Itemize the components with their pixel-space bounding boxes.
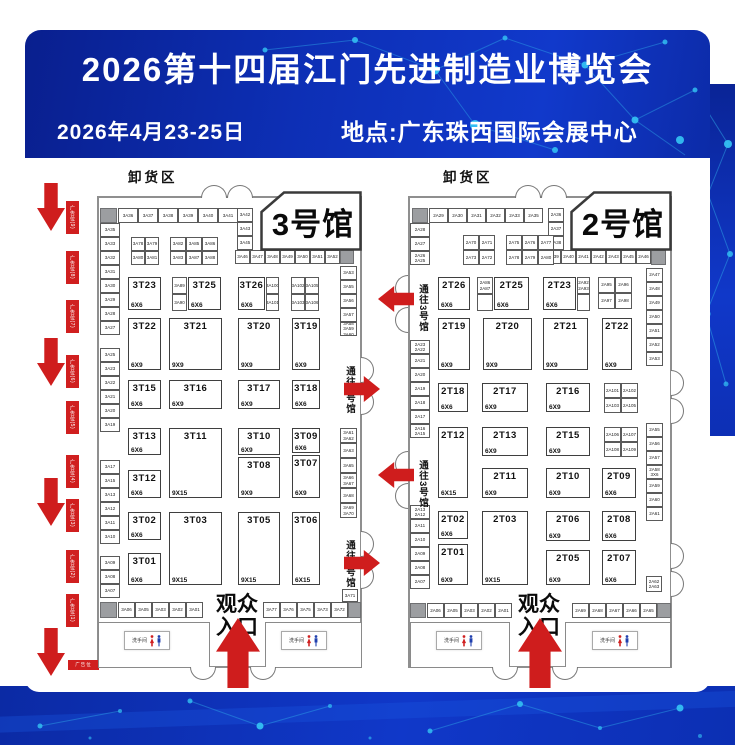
booth-id: 3T03 bbox=[170, 515, 221, 526]
booth-id: 2T26 bbox=[439, 280, 469, 291]
booth-id: 2A107 bbox=[623, 432, 636, 437]
booth-3A68: 3A68 bbox=[340, 488, 357, 503]
booth-3A35: 3A35 bbox=[100, 223, 120, 237]
booth-id: 3A65 bbox=[343, 463, 354, 468]
booth-2A41: 2A41 bbox=[576, 250, 591, 264]
booth-3A17: 3A17 bbox=[100, 460, 120, 474]
booth-id: 3A21 bbox=[105, 394, 116, 399]
booth-2A56: 2A56 bbox=[646, 437, 663, 451]
booth-id: 3A56 bbox=[343, 298, 354, 303]
booth-id: 3A47 bbox=[252, 254, 263, 259]
booth-size: 6X9 bbox=[485, 448, 497, 455]
booth-3A72: 3A72 bbox=[331, 602, 348, 618]
booth-3A100: 3A100 bbox=[266, 277, 279, 294]
booth-id: 2A53 bbox=[649, 356, 660, 361]
booth-id: 3T08 bbox=[239, 460, 279, 471]
booth-id: 2A109 bbox=[623, 447, 636, 452]
booth-size: 6X9 bbox=[485, 404, 497, 411]
booth-id: 3T09 bbox=[293, 431, 319, 442]
booth-3A15: 3A15 bbox=[100, 474, 120, 488]
booth-id: 3A60 bbox=[343, 332, 354, 336]
booth-size: 6X6 bbox=[441, 531, 453, 538]
booth-2A19: 2A19 bbox=[410, 382, 430, 396]
booth-id: 3A11 bbox=[105, 520, 115, 525]
booth-id: 2A60 bbox=[649, 497, 660, 502]
booth-size: 6X9 bbox=[241, 447, 253, 454]
booth-id: 3A02 bbox=[172, 607, 183, 612]
booth-2A31: 2A31 bbox=[467, 208, 486, 223]
booth-id: 2A05 bbox=[447, 608, 458, 613]
booth-3A19: 3A19 bbox=[100, 418, 120, 432]
booth-id: 2A103 bbox=[606, 403, 619, 408]
booth-2A20: 2A20 bbox=[410, 368, 430, 382]
booth-id: 3A33 bbox=[105, 241, 116, 246]
booth-id: 2T13 bbox=[483, 430, 527, 441]
booth-3A42: 3A42 bbox=[237, 208, 253, 222]
male-icon bbox=[156, 635, 162, 647]
booth-2T12: 2T126X15 bbox=[438, 427, 468, 498]
booth-id: 2A70 bbox=[466, 240, 477, 245]
booth-2A97: 2A97 bbox=[598, 293, 615, 309]
booth-3A53: 3A53 bbox=[340, 266, 357, 280]
booth-2T25: 2T256X6 bbox=[494, 277, 529, 310]
booth-3A75: 3A75 bbox=[297, 602, 314, 618]
booth-3A08: 3A08 bbox=[100, 570, 120, 584]
booth-id: 2A51 bbox=[649, 328, 660, 333]
booth-id: 3T05 bbox=[239, 515, 279, 526]
booth-size: 6X9 bbox=[549, 533, 561, 540]
booth-id: 3T07 bbox=[293, 458, 319, 469]
booth-id: 3A72 bbox=[334, 607, 345, 612]
booth-3T03: 3T039X15 bbox=[169, 512, 222, 585]
booth-3A78: 3A78 bbox=[131, 237, 145, 251]
booth-id: 3A80 bbox=[133, 255, 144, 260]
booth-id: 3A27 bbox=[105, 325, 116, 330]
booth-3A51: 3A51 bbox=[310, 250, 325, 264]
booth-2A45: 2A45 bbox=[621, 250, 636, 264]
booth-id: 2A72 bbox=[482, 255, 493, 260]
booth-size: 6X6 bbox=[605, 577, 617, 584]
booth-id: 2T09 bbox=[603, 471, 635, 482]
booth-2T10: 2T106X9 bbox=[546, 468, 590, 498]
booth-id: 3A09 bbox=[105, 560, 116, 565]
booth-id: 3A31 bbox=[105, 269, 116, 274]
booth-3T07: 3T076X9 bbox=[292, 455, 320, 498]
booth-2A53: 2A53 bbox=[646, 352, 663, 366]
booth-empty bbox=[477, 294, 493, 311]
booth-2T01: 2T016X9 bbox=[438, 544, 468, 585]
booth-id: 3A57 bbox=[343, 312, 354, 317]
booth-3A37: 3A37 bbox=[138, 208, 158, 223]
booth-size: 9X15 bbox=[485, 577, 500, 584]
booth-id: 2A01 bbox=[498, 608, 509, 613]
booth-id: 3A29 bbox=[105, 297, 116, 302]
female-icon bbox=[617, 635, 623, 647]
male-icon bbox=[624, 635, 630, 647]
booth-size: 6X9 bbox=[241, 401, 253, 408]
booth-id: 2A65 bbox=[643, 608, 654, 613]
booth-size: 9X9 bbox=[546, 362, 558, 369]
booth-id: 2A09 bbox=[415, 551, 426, 556]
booth-id: 3A08 bbox=[105, 574, 116, 579]
booth-size: 6X6 bbox=[497, 302, 509, 309]
booth-id: 2A11 bbox=[415, 523, 425, 528]
booth-3A05: 3A05 bbox=[135, 602, 152, 618]
booth-id: 2A45 bbox=[623, 254, 634, 259]
booth-3A105: 3A105 bbox=[305, 277, 319, 294]
booth-id: 3A77 bbox=[266, 607, 277, 612]
booth-id: 2A27 bbox=[415, 241, 426, 246]
booth-3A90: 3A90 bbox=[172, 294, 187, 311]
booth-id: 3A83 bbox=[173, 255, 184, 260]
booth-3T15: 3T156X6 bbox=[128, 380, 161, 409]
booth-id: 2A28 bbox=[415, 227, 426, 232]
booth-2A33: 2A33 bbox=[505, 208, 524, 223]
booth-size: 9X9 bbox=[486, 362, 498, 369]
booth-3A45: 3A45 bbox=[237, 236, 253, 250]
booth-id: 3A106 bbox=[306, 300, 319, 305]
booth-id: 2T08 bbox=[603, 514, 635, 525]
hall3-unloading-label: 卸货区 bbox=[128, 166, 178, 186]
booth-id: 3T21 bbox=[170, 321, 221, 332]
booth-id: 2A59 bbox=[649, 483, 660, 488]
booth-id: 2A102 bbox=[623, 388, 636, 393]
service-block bbox=[657, 603, 671, 618]
booth-id: 3T26 bbox=[239, 280, 264, 291]
booth-2T11: 2T116X9 bbox=[482, 468, 528, 498]
service-block bbox=[100, 208, 117, 223]
booth-id: 2A97 bbox=[601, 298, 612, 303]
booth-id: 2A33 bbox=[509, 213, 520, 218]
booth-2A27: 2A27 bbox=[410, 237, 430, 251]
booth-size: 6X6 bbox=[131, 401, 143, 408]
booth-id: 2T16 bbox=[547, 386, 589, 397]
booth-2A51: 2A51 bbox=[646, 324, 663, 338]
booth-size: 6X9 bbox=[549, 577, 561, 584]
booth-2A103: 2A103 bbox=[604, 398, 621, 413]
booth-size: 9X15 bbox=[172, 490, 187, 497]
booth-size: 6X6 bbox=[241, 302, 253, 309]
restroom-label: 洗手间 bbox=[444, 637, 459, 644]
booth-3A39: 3A39 bbox=[178, 208, 198, 223]
booth-2A108: 2A108 bbox=[604, 442, 621, 457]
booth-id: 3A76 bbox=[283, 607, 294, 612]
booth-id: 2T03 bbox=[483, 514, 527, 525]
booth-id: 2A57 bbox=[649, 455, 660, 460]
booth-2A60: 2A60 bbox=[646, 493, 663, 507]
booth-id: 2A52 bbox=[649, 342, 660, 347]
booth-id: 3A10 bbox=[105, 534, 116, 539]
hall3-title-box: 3号馆 bbox=[260, 191, 362, 251]
booth-3A86: 3A86 bbox=[202, 237, 218, 251]
booth-id: 3A12 bbox=[105, 506, 116, 511]
booth-id: 3T25 bbox=[189, 280, 220, 291]
booth-id: 3A70 bbox=[343, 511, 354, 516]
booth-id: 3T06 bbox=[293, 515, 319, 526]
booth-id: 2T17 bbox=[483, 386, 527, 397]
booth-2T20: 2T209X9 bbox=[483, 318, 532, 370]
booth-id: 3A41 bbox=[223, 213, 234, 218]
booth-size: 6X15 bbox=[295, 577, 310, 584]
booth-id: 2A49 bbox=[649, 300, 660, 305]
booth-empty bbox=[577, 294, 590, 311]
booth-2T19: 2T196X9 bbox=[438, 318, 470, 370]
booth-id: 2A30 bbox=[452, 213, 463, 218]
booth-size: 9X15 bbox=[172, 577, 187, 584]
booth-3T13: 3T136X6 bbox=[128, 428, 161, 455]
booth-id: 2A80 bbox=[541, 255, 552, 260]
booth-id: 3A03 bbox=[155, 607, 166, 612]
booth-id: 3A100 bbox=[266, 283, 279, 288]
booth-id: 2A29 bbox=[433, 213, 444, 218]
booth-3A10: 3A10 bbox=[100, 530, 120, 544]
booth-2A17: 2A17 bbox=[410, 410, 430, 424]
booth-id: 3T10 bbox=[239, 431, 279, 442]
booth-id: 3X6 bbox=[650, 472, 658, 477]
booth-3A20: 3A20 bbox=[100, 404, 120, 418]
booth-id: 3A38 bbox=[163, 213, 174, 218]
booth-2A66: 2A66 bbox=[623, 603, 640, 618]
booth-2A69: 2A69 bbox=[572, 603, 589, 618]
booth-id: 3A53 bbox=[343, 270, 354, 275]
booth-2A107: 2A107 bbox=[621, 427, 638, 442]
booth-id: 3A42 bbox=[240, 212, 251, 217]
service-block bbox=[651, 250, 666, 265]
booth-3A83: 3A83 bbox=[170, 251, 186, 265]
booth-id: 3T12 bbox=[129, 473, 160, 484]
booth-id: 3A101 bbox=[266, 300, 279, 305]
booth-3A21: 3A21 bbox=[100, 390, 120, 404]
booth-3T08: 3T089X9 bbox=[238, 457, 280, 498]
booth-3T05: 3T059X15 bbox=[238, 512, 280, 585]
booth-2A72: 2A72 bbox=[479, 250, 495, 265]
booth-id: 2A40 bbox=[563, 254, 574, 259]
booth-2A46: 2A46 bbox=[636, 250, 651, 264]
booth-id: 3A85 bbox=[189, 241, 200, 246]
female-icon bbox=[149, 635, 155, 647]
booth-2A105: 2A105 bbox=[621, 398, 638, 413]
booth-3T23: 3T236X6 bbox=[128, 277, 161, 310]
booth-id: 3T18 bbox=[293, 383, 319, 394]
booth-2A102: 2A102 bbox=[621, 383, 638, 398]
booth-id: 3A13 bbox=[105, 492, 116, 497]
booth-3A22: 3A22 bbox=[100, 376, 120, 390]
booth-id: 2A66 bbox=[626, 608, 637, 613]
booth-id: 3A32 bbox=[105, 255, 116, 260]
booth-id: 3A01 bbox=[189, 607, 200, 612]
booth-3A25: 3A25 bbox=[100, 348, 120, 362]
booth-2A32: 2A32 bbox=[486, 208, 505, 223]
booth-3T20: 3T209X9 bbox=[238, 318, 280, 370]
booth-3A55: 3A55 bbox=[340, 280, 357, 294]
booth-id: 2T11 bbox=[483, 471, 527, 482]
booth-3T18: 3T186X6 bbox=[292, 380, 320, 409]
booth-3A03: 3A03 bbox=[152, 602, 169, 618]
booth-id: 3A39 bbox=[183, 213, 194, 218]
booth-id: 3A55 bbox=[343, 284, 354, 289]
booth-2A109: 2A109 bbox=[621, 442, 638, 457]
booth-size: 6X6 bbox=[131, 490, 143, 497]
booth-3A31: 3A31 bbox=[100, 265, 120, 279]
booth-2A75: 2A75 bbox=[506, 235, 522, 250]
booth-id: 2T05 bbox=[547, 553, 589, 564]
booth-id: 3A82 bbox=[173, 241, 184, 246]
booth-size: 6X6 bbox=[605, 490, 617, 497]
booth-3A65: 3A65 bbox=[340, 458, 357, 473]
booth-3A49: 3A49 bbox=[280, 250, 295, 264]
booth-3T19: 3T196X9 bbox=[292, 318, 320, 370]
booth-id: 3T19 bbox=[293, 321, 319, 332]
booth-id: 2A79 bbox=[525, 255, 536, 260]
booth-id: 2A20 bbox=[415, 372, 426, 377]
booth-size: 6X9 bbox=[549, 490, 561, 497]
booth-2A86: 2A862A87 bbox=[477, 277, 493, 294]
booth-3T01: 3T016X6 bbox=[128, 553, 161, 585]
booth-size: 6X9 bbox=[441, 362, 453, 369]
booth-2A10: 2A10 bbox=[410, 533, 430, 547]
booth-3T25: 3T256X6 bbox=[188, 277, 221, 310]
booth-3A46: 3A46 bbox=[235, 250, 250, 264]
booth-2A71: 2A71 bbox=[479, 235, 495, 250]
booth-2A106: 2A106 bbox=[604, 427, 621, 442]
booth-id: 2A73 bbox=[466, 255, 477, 260]
booth-id: 2T12 bbox=[439, 430, 467, 441]
booth-id: 3A89 bbox=[174, 283, 185, 288]
booth-id: 3A30 bbox=[105, 283, 116, 288]
booth-2T22: 2T226X9 bbox=[602, 318, 632, 370]
booth-id: 3T13 bbox=[129, 431, 160, 442]
booth-2A59: 2A59 bbox=[646, 479, 663, 493]
booth-3A87: 3A87 bbox=[186, 251, 202, 265]
booth-3A85: 3A85 bbox=[186, 237, 202, 251]
hall3-title: 3号馆 bbox=[260, 191, 362, 251]
booth-2A01: 2A01 bbox=[495, 603, 512, 618]
booth-2A98: 2A98 bbox=[615, 293, 632, 309]
booth-2A61: 2A61 bbox=[646, 507, 663, 521]
booth-id: 2T07 bbox=[603, 553, 635, 564]
booth-id: 3T01 bbox=[129, 556, 160, 567]
booth-2A08: 2A08 bbox=[410, 561, 430, 575]
booth-size: 6X6 bbox=[131, 447, 143, 454]
booth-3A89: 3A89 bbox=[172, 277, 187, 294]
booth-2A40: 2A40 bbox=[561, 250, 576, 264]
booth-id: 2A77 bbox=[541, 240, 552, 245]
booth-3A106: 3A106 bbox=[305, 294, 319, 311]
booth-id: 3A50 bbox=[297, 254, 308, 259]
booth-id: 2A71 bbox=[482, 240, 493, 245]
booth-size: 6X9 bbox=[485, 490, 497, 497]
booth-2A62: 2A622A63 bbox=[646, 576, 662, 592]
booth-id: 2A50 bbox=[649, 314, 660, 319]
booth-id: 2T01 bbox=[439, 547, 467, 558]
booth-2A29: 2A29 bbox=[429, 208, 448, 223]
booth-id: 3A67 bbox=[343, 481, 354, 486]
female-icon bbox=[306, 635, 312, 647]
booth-size: 6X9 bbox=[549, 404, 561, 411]
booth-2A57: 2A57 bbox=[646, 451, 663, 465]
booth-2A43: 2A43 bbox=[606, 250, 621, 264]
booth-3T21: 3T219X9 bbox=[169, 318, 222, 370]
booth-2A77: 2A77 bbox=[538, 235, 554, 250]
booth-3A47: 3A47 bbox=[250, 250, 265, 264]
booth-2T05: 2T056X9 bbox=[546, 550, 590, 585]
booth-id: 3A22 bbox=[105, 380, 116, 385]
booth-2A47: 2A47 bbox=[646, 268, 663, 282]
booth-2T26: 2T266X6 bbox=[438, 277, 470, 310]
booth-id: 2A98 bbox=[618, 298, 629, 303]
booth-size: 6X9 bbox=[295, 362, 307, 369]
booth-2A58: 2A583X6 bbox=[646, 465, 663, 479]
restroom-sign: 洗手间 bbox=[281, 631, 327, 650]
booth-id: 2A55 bbox=[649, 427, 660, 432]
booth-id: 3A68 bbox=[343, 493, 354, 498]
booth-3A80: 3A80 bbox=[131, 251, 145, 265]
booth-id: 2A108 bbox=[606, 447, 619, 452]
booth-3A29: 3A29 bbox=[100, 293, 120, 307]
booth-id: 2A63 bbox=[649, 584, 660, 589]
booth-2A50: 2A50 bbox=[646, 310, 663, 324]
booth-3T10: 3T106X9 bbox=[238, 428, 280, 455]
booth-3A63: 3A63 bbox=[340, 443, 357, 458]
booth-3A66: 3A663A67 bbox=[340, 473, 357, 488]
booth-3T22: 3T226X9 bbox=[128, 318, 161, 370]
booth-id: 3A45 bbox=[240, 240, 251, 245]
booth-id: 2A08 bbox=[415, 565, 426, 570]
booth-3A13: 3A13 bbox=[100, 488, 120, 502]
booth-size: 6X9 bbox=[295, 490, 307, 497]
booth-id: 2A02 bbox=[481, 608, 492, 613]
booth-2T08: 2T086X6 bbox=[602, 511, 636, 541]
booth-3A50: 3A50 bbox=[295, 250, 310, 264]
booth-2A42: 2A42 bbox=[591, 250, 606, 264]
booth-size: 6X6 bbox=[441, 302, 453, 309]
booth-3A01: 3A01 bbox=[186, 602, 203, 618]
booth-2A28: 2A28 bbox=[410, 223, 430, 237]
booth-2T07: 2T076X6 bbox=[602, 550, 636, 585]
booth-id: 3A19 bbox=[105, 422, 116, 427]
booth-id: 2A76 bbox=[525, 240, 536, 245]
booth-2A95: 2A95 bbox=[598, 277, 615, 293]
booth-2A18: 2A18 bbox=[410, 396, 430, 410]
restroom-sign: 洗手间 bbox=[592, 631, 638, 650]
booth-3T17: 3T176X9 bbox=[238, 380, 280, 409]
booth-id: 2A101 bbox=[606, 388, 619, 393]
booth-2A55: 2A55 bbox=[646, 423, 663, 437]
booth-id: 3A103 bbox=[292, 300, 305, 305]
booth-3A102: 3A102 bbox=[291, 277, 305, 294]
booth-id: 3A40 bbox=[203, 213, 214, 218]
booth-id: 3T17 bbox=[239, 383, 279, 394]
booth-id: 3T22 bbox=[129, 321, 160, 332]
booth-3T09: 3T096X6 bbox=[292, 428, 320, 453]
booth-3T26: 3T266X6 bbox=[238, 277, 265, 310]
booth-2A11: 2A11 bbox=[410, 519, 430, 533]
booth-2A68: 2A68 bbox=[589, 603, 606, 618]
booth-id: 3A49 bbox=[282, 254, 293, 259]
booth-id: 3T16 bbox=[170, 383, 221, 394]
booth-size: 6X6 bbox=[131, 532, 143, 539]
booth-size: 6X6 bbox=[191, 302, 203, 309]
booth-2T16: 2T166X9 bbox=[546, 383, 590, 412]
booth-id: 3A35 bbox=[105, 227, 116, 232]
booth-id: 3A63 bbox=[343, 448, 354, 453]
booth-id: 3A20 bbox=[105, 408, 116, 413]
booth-size: 6X6 bbox=[546, 302, 558, 309]
booth-size: 6X9 bbox=[172, 401, 184, 408]
booth-3A52: 3A52 bbox=[325, 250, 340, 264]
booth-id: 3A36 bbox=[123, 213, 134, 218]
booth-id: 2A96 bbox=[618, 282, 629, 287]
